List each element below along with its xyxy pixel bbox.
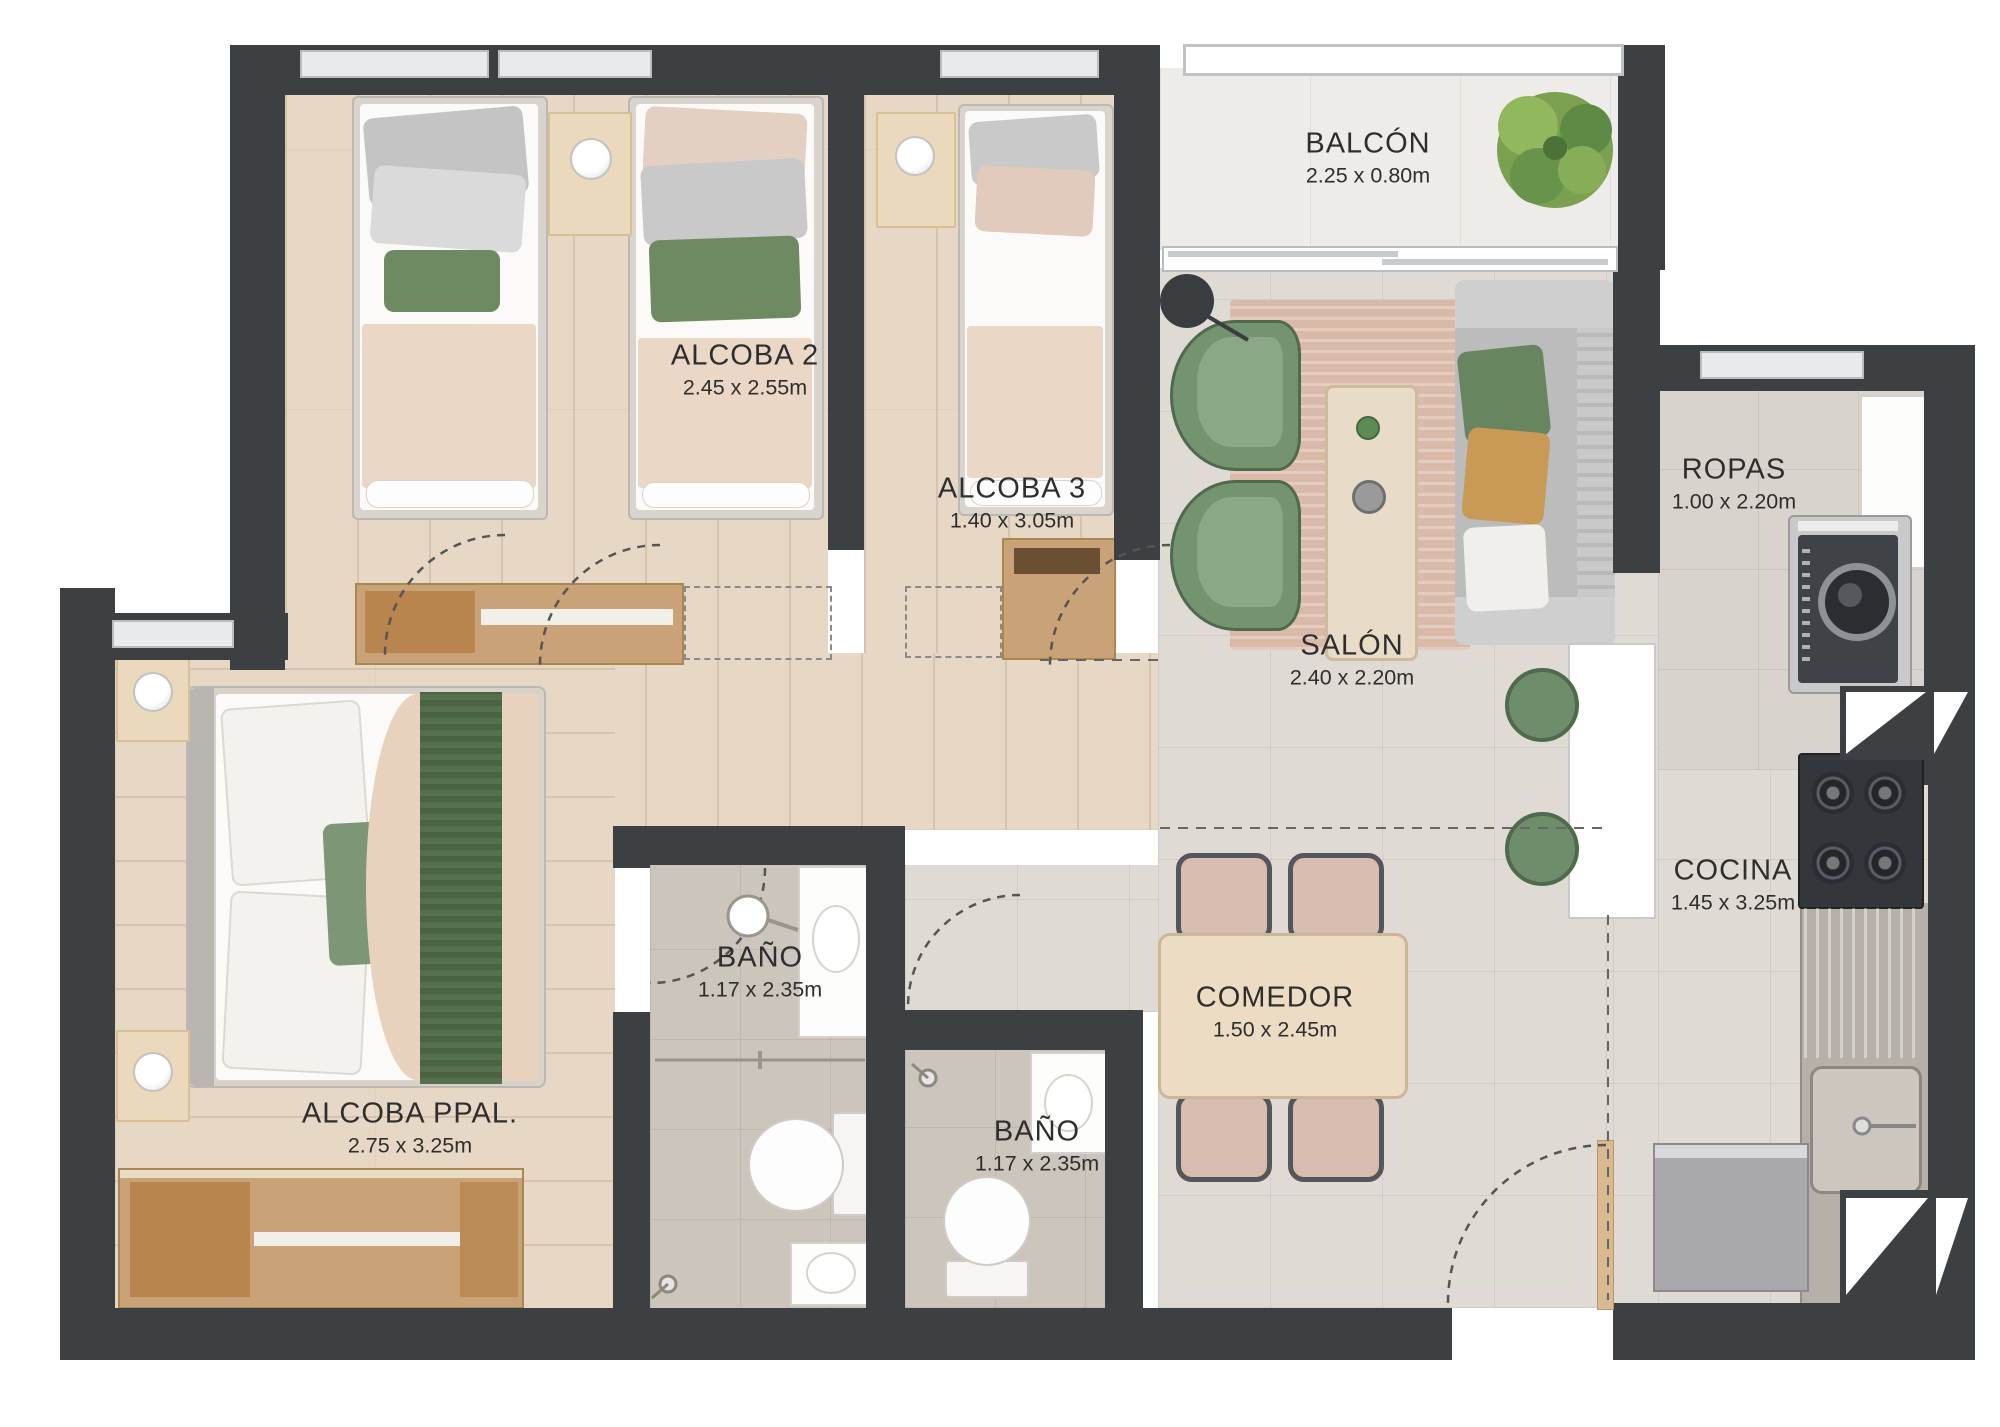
room-dims: 2.45 x 2.55m [671,376,819,401]
annotation-overlay [0,0,2000,1427]
door-arc-alcoba-ppal [385,535,505,655]
room-name: COCINA [1671,855,1795,888]
round-mirror-icon [728,896,768,936]
door-arc-bano2 [908,895,1020,1007]
room-name: ALCOBA PPAL. [302,1098,518,1131]
room-name: COMEDOR [1196,982,1354,1015]
room-dims: 1.40 x 3.05m [938,509,1086,534]
room-label-ropas: ROPAS 1.00 x 2.20m [1672,454,1796,515]
room-label-salon: SALÓN 2.40 x 2.20m [1290,630,1414,691]
room-name: BAÑO [975,1116,1099,1149]
plant [1497,92,1613,208]
room-label-cocina: COCINA 1.45 x 3.25m [1671,855,1795,916]
floor-lamp-arm [1190,306,1248,340]
door-arc-entry [1448,1145,1606,1303]
room-name: ROPAS [1672,454,1796,487]
room-dims: 2.40 x 2.20m [1290,666,1414,691]
room-dims: 1.17 x 2.35m [975,1152,1099,1177]
room-name: BAÑO [698,942,822,975]
room-label-bano1: BAÑO 1.17 x 2.35m [698,942,822,1003]
room-name: SALÓN [1290,630,1414,663]
floor-plan: BALCÓN 2.25 x 0.80m ALCOBA 2 2.45 x 2.55… [0,0,2000,1427]
room-name: BALCÓN [1305,128,1430,161]
door-arc-alcoba2 [540,545,660,665]
room-name: ALCOBA 2 [671,340,819,373]
room-label-balcon: BALCÓN 2.25 x 0.80m [1305,128,1430,189]
room-name: ALCOBA 3 [938,473,1086,506]
room-label-comedor: COMEDOR 1.50 x 2.45m [1196,982,1354,1043]
room-label-bano2: BAÑO 1.17 x 2.35m [975,1116,1099,1177]
room-dims: 2.25 x 0.80m [1305,164,1430,189]
room-label-alcoba3: ALCOBA 3 1.40 x 3.05m [938,473,1086,534]
mirror-arm [768,920,798,930]
door-arc-alcoba3 [1050,545,1170,665]
room-dims: 2.75 x 3.25m [302,1134,518,1159]
room-label-alcoba2: ALCOBA 2 2.45 x 2.55m [671,340,819,401]
room-dims: 1.17 x 2.35m [698,978,822,1003]
room-label-alcoba-ppal: ALCOBA PPAL. 2.75 x 3.25m [302,1098,518,1159]
room-dims: 1.45 x 3.25m [1671,891,1795,916]
room-dims: 1.50 x 2.45m [1196,1018,1354,1043]
room-dims: 1.00 x 2.20m [1672,490,1796,515]
faucet-icon [1854,1118,1870,1134]
